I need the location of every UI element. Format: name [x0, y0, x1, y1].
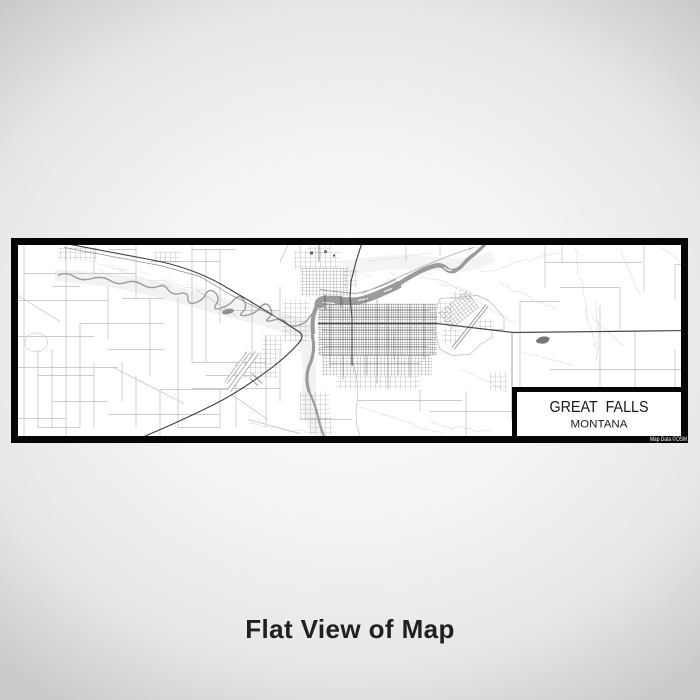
svg-text:MONTANA: MONTANA — [571, 419, 629, 431]
svg-text:GREAT FALLS: GREAT FALLS — [550, 399, 649, 416]
svg-text:Map Data ©OSM: Map Data ©OSM — [650, 435, 687, 443]
